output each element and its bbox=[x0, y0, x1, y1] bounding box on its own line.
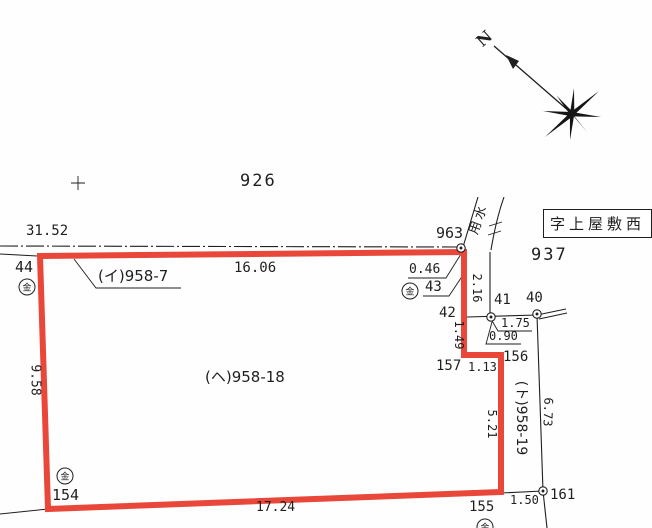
point-40-label: 40 bbox=[526, 291, 543, 305]
marker-glyph: 金 bbox=[480, 521, 489, 528]
point-43-label: 43 bbox=[425, 280, 442, 294]
survey-marker-icon: 金 bbox=[477, 519, 494, 528]
north-road-boundary-line bbox=[0, 246, 459, 247]
point-155-label: 155 bbox=[469, 500, 494, 514]
dim-5-21: 5.21 bbox=[486, 410, 498, 439]
dim-1-49: 1.49 bbox=[453, 321, 465, 350]
marker-glyph: 金 bbox=[22, 281, 31, 294]
compass-arrowhead bbox=[506, 55, 519, 69]
point-157-label: 157 bbox=[436, 359, 461, 373]
dim-6-73: 6.73 bbox=[541, 397, 554, 426]
bottom-continuation-line bbox=[543, 491, 547, 528]
point-42-label: 42 bbox=[439, 306, 456, 320]
parcel-958-18-label: (ヘ)958-18 bbox=[205, 370, 285, 385]
marker-glyph: 金 bbox=[405, 285, 414, 298]
district-name-box: 字上屋敷西 bbox=[543, 209, 652, 238]
parcel-958-19-label: (ト)958-19 bbox=[514, 381, 528, 456]
compass-needle-line bbox=[494, 46, 570, 112]
dim-31-52: 31.52 bbox=[26, 224, 68, 238]
parcel-958-7-label: (イ)958-7 bbox=[98, 269, 168, 284]
dim-16-06: 16.06 bbox=[234, 261, 276, 275]
dim-17-24: 17.24 bbox=[256, 501, 295, 514]
survey-marker-icon: 金 bbox=[19, 279, 36, 296]
point-41-label: 41 bbox=[494, 293, 511, 307]
point-154-label: 154 bbox=[52, 488, 79, 503]
survey-marker-icon: 金 bbox=[402, 283, 419, 300]
dim-0-90: 0.90 bbox=[489, 330, 518, 342]
dim-1-50: 1.50 bbox=[510, 494, 539, 506]
point-44-label: 44 bbox=[15, 260, 33, 275]
point-963-label: 963 bbox=[436, 226, 463, 241]
survey-marker-icon: 金 bbox=[57, 468, 74, 485]
cadastral-map: N 926 937 字上屋敷西 (イ)958-7 (ヘ)958-18 (ト)95… bbox=[0, 0, 652, 528]
dim-0-46: 0.46 bbox=[409, 263, 440, 276]
dim-2-16: 2.16 bbox=[471, 274, 483, 303]
dim-1-13: 1.13 bbox=[468, 361, 497, 373]
west-adjacent-line bbox=[0, 254, 37, 256]
marker-glyph: 金 bbox=[60, 470, 69, 483]
compass-rose bbox=[494, 46, 601, 140]
dim-9-58: 9.58 bbox=[29, 364, 42, 395]
point-161-label: 161 bbox=[550, 488, 575, 502]
parcel-937-label: 937 bbox=[531, 247, 568, 264]
grid-cross bbox=[71, 176, 85, 190]
dim-1-75: 1.75 bbox=[501, 317, 530, 329]
parcel-926-label: 926 bbox=[240, 173, 277, 190]
bottom-west-line bbox=[0, 509, 48, 514]
point-156-label: 156 bbox=[503, 350, 528, 364]
